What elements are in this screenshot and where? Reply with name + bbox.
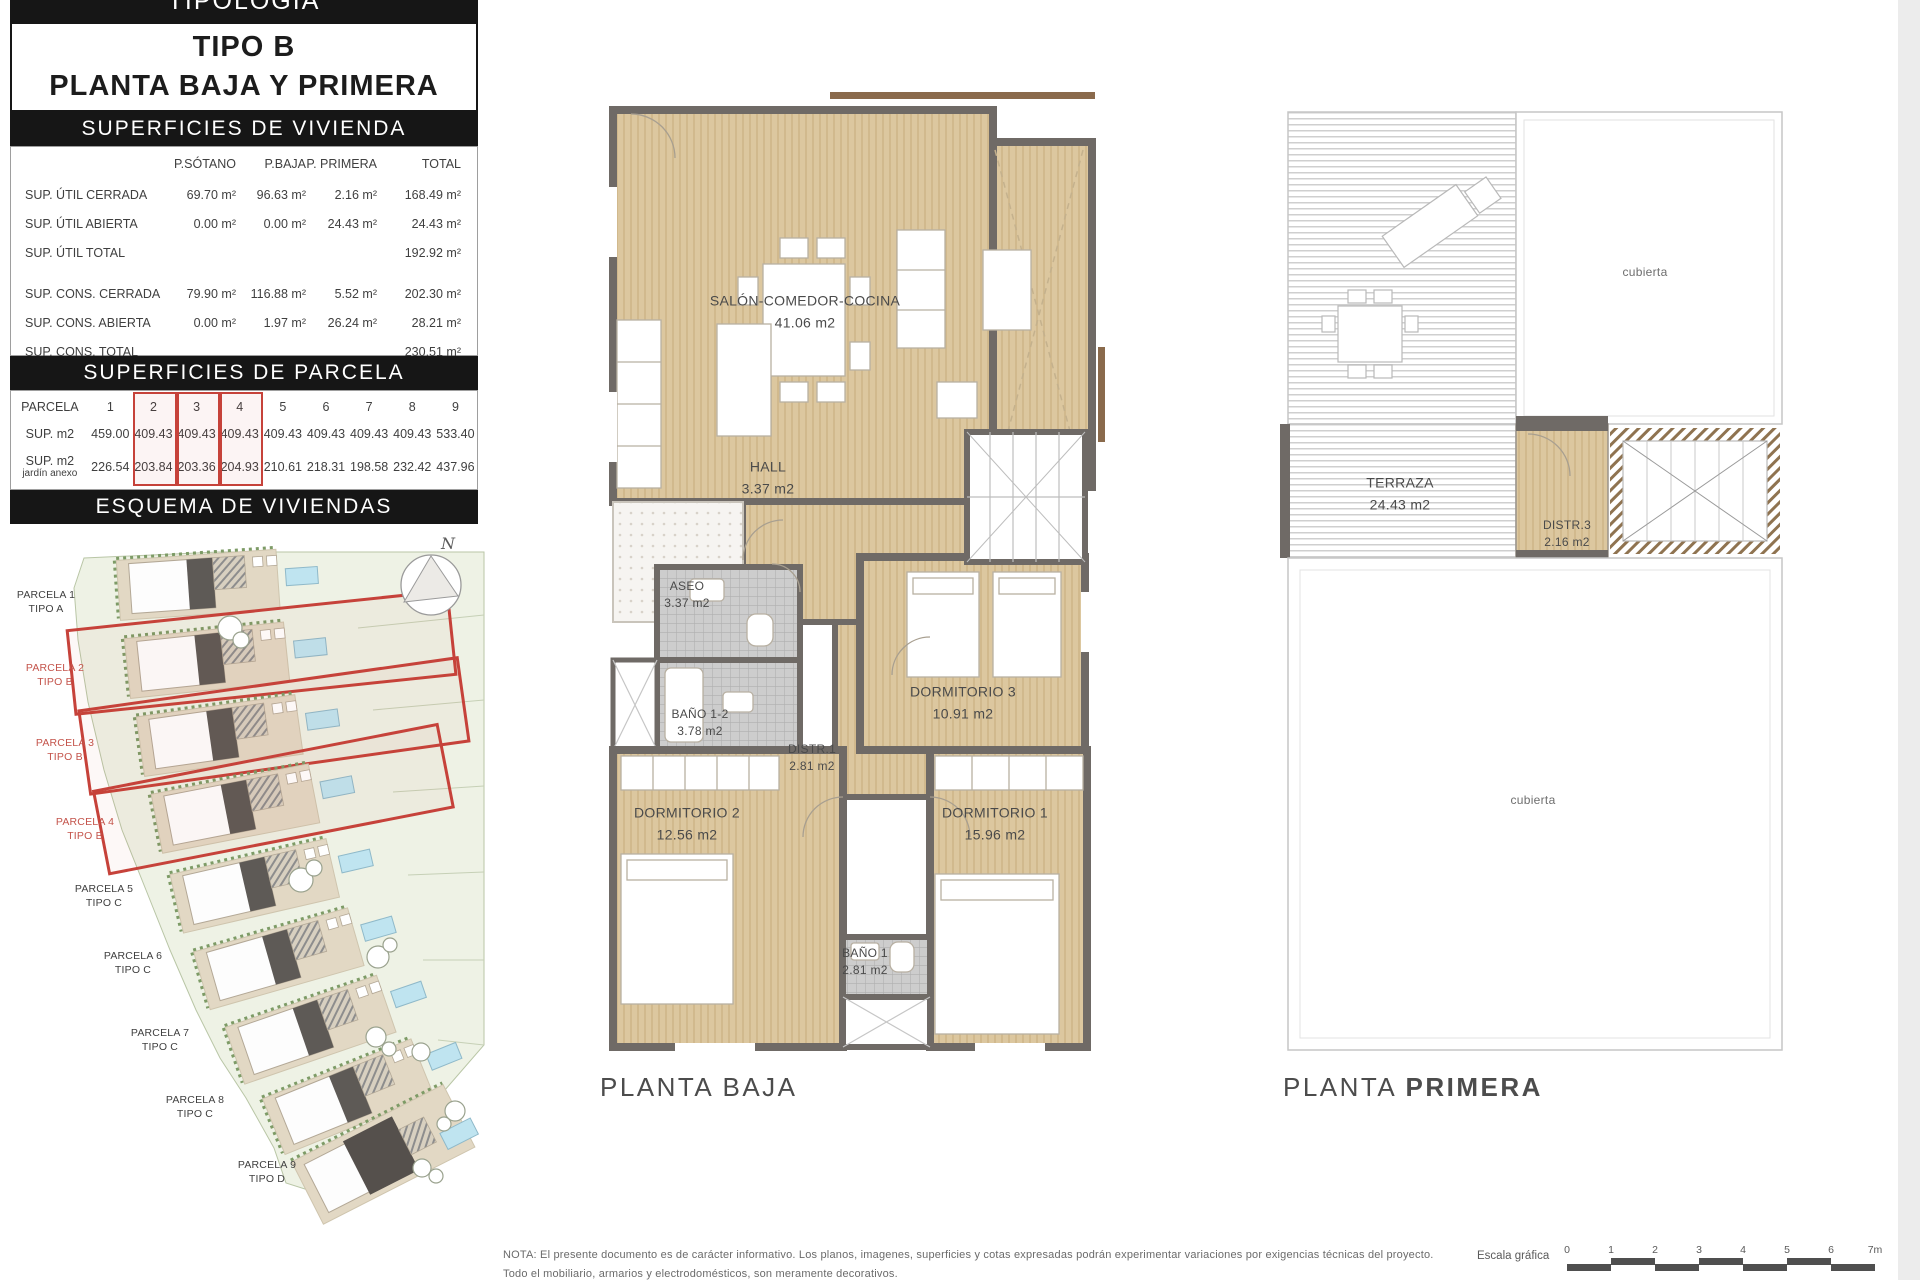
room-area: 24.43 m2 <box>1366 494 1433 516</box>
cubierta-top-label: cubierta <box>1622 265 1667 279</box>
parcela-name: PARCELA 8 <box>166 1093 224 1107</box>
planta-baja-plan: SALÓN-COMEDOR-COCINA 41.06 m2 HALL 3.37 … <box>595 92 1107 1072</box>
cell <box>236 239 306 268</box>
parcela-tipo: TIPO B <box>36 750 94 764</box>
row-label: SUP. ÚTIL CERRADA <box>11 181 161 210</box>
cell: 168.49 m² <box>377 181 461 210</box>
table-header-row: P.SÓTANO P.BAJA P. PRIMERA TOTAL <box>11 147 477 181</box>
parcela-tipo: TIPO B <box>26 675 84 689</box>
esquema-header: ESQUEMA DE VIVIENDAS <box>10 490 478 524</box>
table-row: SUP. ÚTIL CERRADA 69.70 m² 96.63 m² 2.16… <box>11 181 477 210</box>
tipo-subtitle: PLANTA BAJA Y PRIMERA <box>49 70 438 103</box>
parcela-name: PARCELA 5 <box>75 882 133 896</box>
cell: 1.97 m² <box>236 309 306 338</box>
room-label-hall: HALL 3.37 m2 <box>742 456 795 499</box>
planta-primera-plan: cubierta TERRAZA 24.43 m2 DISTR.3 2.16 m… <box>1280 106 1792 1066</box>
table-spacer <box>11 268 477 280</box>
parcela-4-highlight <box>220 392 263 486</box>
parcela-name: PARCELA 3 <box>36 736 94 750</box>
room-label-dorm2: DORMITORIO 2 12.56 m2 <box>634 802 740 845</box>
nota-line-1: NOTA: El presente documento es de caráct… <box>503 1246 1434 1265</box>
cell: 5.52 m² <box>306 280 377 309</box>
parcela-label-9: PARCELA 9 TIPO D <box>238 1158 296 1186</box>
room-name: BAÑO 1 <box>842 945 888 962</box>
cell: 192.92 m² <box>377 239 461 268</box>
cell: 28.21 m² <box>377 309 461 338</box>
parcela-tipo: TIPO C <box>166 1107 224 1121</box>
room-area: 2.81 m2 <box>842 962 888 979</box>
cell: 24.43 m² <box>306 210 377 239</box>
nota-text: NOTA: El presente documento es de caráct… <box>503 1246 1434 1280</box>
table-row: SUP. CONS. ABIERTA 0.00 m² 1.97 m² 26.24… <box>11 309 477 338</box>
parcela-name: PARCELA 7 <box>131 1026 189 1040</box>
cell: 96.63 m² <box>236 181 306 210</box>
north-compass-icon <box>401 555 461 615</box>
scale-tick: 2 <box>1652 1244 1658 1256</box>
vivienda-header-label: SUPERFICIES DE VIVIENDA <box>82 117 407 141</box>
cell: 409.43 <box>304 427 347 441</box>
cell: 202.30 m² <box>377 280 461 309</box>
cell: 218.31 <box>304 460 347 474</box>
parcela-label-7: PARCELA 7 TIPO C <box>131 1026 189 1054</box>
parcela-label-3: PARCELA 3 TIPO B <box>36 736 94 764</box>
room-name: BAÑO 1-2 <box>671 706 728 723</box>
tipologia-bar: TIPOLOGÍA <box>10 0 478 22</box>
cell: 437.96 <box>434 460 477 474</box>
cell: 2.16 m² <box>306 181 377 210</box>
scale-segment <box>1787 1258 1831 1265</box>
parcela-label-4: PARCELA 4 TIPO B <box>56 815 114 843</box>
room-label-aseo: ASEO 3.37 m2 <box>664 578 709 612</box>
cell: 79.90 m² <box>161 280 236 309</box>
caption-regular: PLANTA <box>1283 1072 1396 1102</box>
room-area: 41.06 m2 <box>710 312 900 334</box>
tipo-title: TIPO B <box>193 31 296 64</box>
room-label-bano12: BAÑO 1-2 3.78 m2 <box>671 706 728 740</box>
vivienda-table: P.SÓTANO P.BAJA P. PRIMERA TOTAL SUP. ÚT… <box>10 146 478 356</box>
col-header: P.BAJA <box>236 147 306 181</box>
room-label-salon: SALÓN-COMEDOR-COCINA 41.06 m2 <box>710 290 900 333</box>
page-edge-strip <box>1898 0 1920 1280</box>
planta-primera-caption: PLANTA PRIMERA <box>1283 1072 1543 1103</box>
row-label: SUP. ÚTIL ABIERTA <box>11 210 161 239</box>
scale-tick: 6 <box>1828 1244 1834 1256</box>
room-label-bano1: BAÑO 1 2.81 m2 <box>842 945 888 979</box>
planta-primera-drawing <box>1280 106 1792 1066</box>
parcela-tipo: TIPO C <box>131 1040 189 1054</box>
room-name: HALL <box>742 456 795 478</box>
room-area: 3.37 m2 <box>664 595 709 612</box>
parcela-name: PARCELA 6 <box>104 949 162 963</box>
parcela-label-2: PARCELA 2 TIPO B <box>26 661 84 689</box>
vivienda-header: SUPERFICIES DE VIVIENDA <box>10 112 478 146</box>
cell: 459.00 <box>89 427 132 441</box>
room-label-dorm3: DORMITORIO 3 10.91 m2 <box>910 681 1016 724</box>
room-name: DISTR.1 <box>788 741 836 758</box>
room-label-distr1: DISTR.1 2.81 m2 <box>788 741 836 775</box>
tipologia-title: TIPOLOGÍA <box>10 0 478 16</box>
cell: 0.00 m² <box>161 210 236 239</box>
room-area: 15.96 m2 <box>942 824 1048 846</box>
parcela-label-1: PARCELA 1 TIPO A <box>17 588 75 616</box>
cell: 198.58 <box>348 460 391 474</box>
cell: 69.70 m² <box>161 181 236 210</box>
scale-segment <box>1831 1264 1875 1271</box>
parcela-name: PARCELA 1 <box>17 588 75 602</box>
scale-bar: Escala gráfica 0 1 2 3 4 5 6 7m <box>1477 1244 1897 1280</box>
cell: 1 <box>89 400 132 414</box>
room-name: DORMITORIO 2 <box>634 802 740 824</box>
tipo-title-box: TIPO B PLANTA BAJA Y PRIMERA <box>10 22 478 112</box>
table-row: SUP. ÚTIL ABIERTA 0.00 m² 0.00 m² 24.43 … <box>11 210 477 239</box>
room-name: SALÓN-COMEDOR-COCINA <box>710 290 900 312</box>
cell: 8 <box>391 400 434 414</box>
room-name: DORMITORIO 1 <box>942 802 1048 824</box>
parcela-name: PARCELA 9 <box>238 1158 296 1172</box>
cell <box>11 147 161 181</box>
cell: 116.88 m² <box>236 280 306 309</box>
room-area: 12.56 m2 <box>634 824 740 846</box>
scale-segment <box>1611 1258 1655 1265</box>
col-header: P.SÓTANO <box>161 147 236 181</box>
room-area: 3.78 m2 <box>671 723 728 740</box>
parcela-name: PARCELA 2 <box>26 661 84 675</box>
row-label: SUP. m2 <box>11 427 89 441</box>
table-row: SUP. ÚTIL TOTAL 192.92 m² <box>11 239 477 268</box>
cell: 9 <box>434 400 477 414</box>
row-label: SUP. ÚTIL TOTAL <box>11 239 161 268</box>
planta-baja-caption: PLANTA BAJA <box>600 1072 798 1103</box>
col-header: P. PRIMERA <box>306 147 377 181</box>
room-name: DORMITORIO 3 <box>910 681 1016 703</box>
row-label-line: jardín anexo <box>11 468 89 480</box>
room-label-distr3: DISTR.3 2.16 m2 <box>1543 517 1591 551</box>
cell <box>306 239 377 268</box>
scale-tick: 0 <box>1564 1244 1570 1256</box>
room-name: ASEO <box>664 578 709 595</box>
parcela-label-5: PARCELA 5 TIPO C <box>75 882 133 910</box>
cell <box>161 239 236 268</box>
cell: 409.43 <box>391 427 434 441</box>
parcela-tipo: TIPO A <box>17 602 75 616</box>
parcela-tipo: TIPO C <box>75 896 133 910</box>
cell: 0.00 m² <box>161 309 236 338</box>
cell: 210.61 <box>261 460 304 474</box>
cell: 7 <box>348 400 391 414</box>
esquema-header-label: ESQUEMA DE VIVIENDAS <box>96 495 393 519</box>
parcela-tipo: TIPO C <box>104 963 162 977</box>
room-label-dorm1: DORMITORIO 1 15.96 m2 <box>942 802 1048 845</box>
cell: 232.42 <box>391 460 434 474</box>
room-name: DISTR.3 <box>1543 517 1591 534</box>
cell: 409.43 <box>348 427 391 441</box>
caption-bold: PRIMERA <box>1406 1072 1543 1102</box>
parcela-2-highlight <box>133 392 177 486</box>
row-label: SUP. CONS. ABIERTA <box>11 309 161 338</box>
parcela-name: PARCELA 4 <box>56 815 114 829</box>
scale-tick: 4 <box>1740 1244 1746 1256</box>
room-name: TERRAZA <box>1366 472 1433 494</box>
cell: 226.54 <box>89 460 132 474</box>
parcela-label-8: PARCELA 8 TIPO C <box>166 1093 224 1121</box>
scale-segment <box>1655 1264 1699 1271</box>
north-label: N <box>441 534 455 553</box>
parcela-tipo: TIPO D <box>238 1172 296 1186</box>
room-area: 2.16 m2 <box>1543 534 1591 551</box>
cell: 24.43 m² <box>377 210 461 239</box>
scale-segment <box>1743 1264 1787 1271</box>
cubierta-bottom-label: cubierta <box>1510 793 1555 807</box>
cell: 5 <box>261 400 304 414</box>
row-label: SUP. CONS. CERRADA <box>11 280 161 309</box>
scale-segment <box>1567 1264 1611 1271</box>
cell: 26.24 m² <box>306 309 377 338</box>
scale-tick: 3 <box>1696 1244 1702 1256</box>
cell: 0.00 m² <box>236 210 306 239</box>
parcela-label-6: PARCELA 6 TIPO C <box>104 949 162 977</box>
nota-line-2: Todo el mobiliario, armarios y electrodo… <box>503 1265 1434 1280</box>
cell: 409.43 <box>261 427 304 441</box>
site-plan: N PARCELA 1 TIPO A PARCELA 2 TIPO B PARC… <box>8 540 486 1280</box>
parcela-header: SUPERFICIES DE PARCELA <box>10 356 478 390</box>
row-label: PARCELA <box>11 400 89 414</box>
cell: 533.40 <box>434 427 477 441</box>
room-label-terraza: TERRAZA 24.43 m2 <box>1366 472 1433 515</box>
room-area: 2.81 m2 <box>788 758 836 775</box>
room-area: 10.91 m2 <box>910 703 1016 725</box>
cell: 6 <box>304 400 347 414</box>
row-label-line: SUP. m2 <box>11 454 89 468</box>
room-area: 3.37 m2 <box>742 478 795 500</box>
row-label: SUP. m2 jardín anexo <box>11 454 89 480</box>
scale-segment <box>1699 1258 1743 1265</box>
scale-tick: 7m <box>1868 1244 1883 1256</box>
scale-tick: 1 <box>1608 1244 1614 1256</box>
parcela-tipo: TIPO B <box>56 829 114 843</box>
table-row: SUP. CONS. CERRADA 79.90 m² 116.88 m² 5.… <box>11 280 477 309</box>
scale-tick: 5 <box>1784 1244 1790 1256</box>
parcela-3-highlight <box>177 392 220 486</box>
scale-label: Escala gráfica <box>1477 1250 1549 1262</box>
col-header: TOTAL <box>377 147 461 181</box>
parcela-header-label: SUPERFICIES DE PARCELA <box>83 361 404 385</box>
